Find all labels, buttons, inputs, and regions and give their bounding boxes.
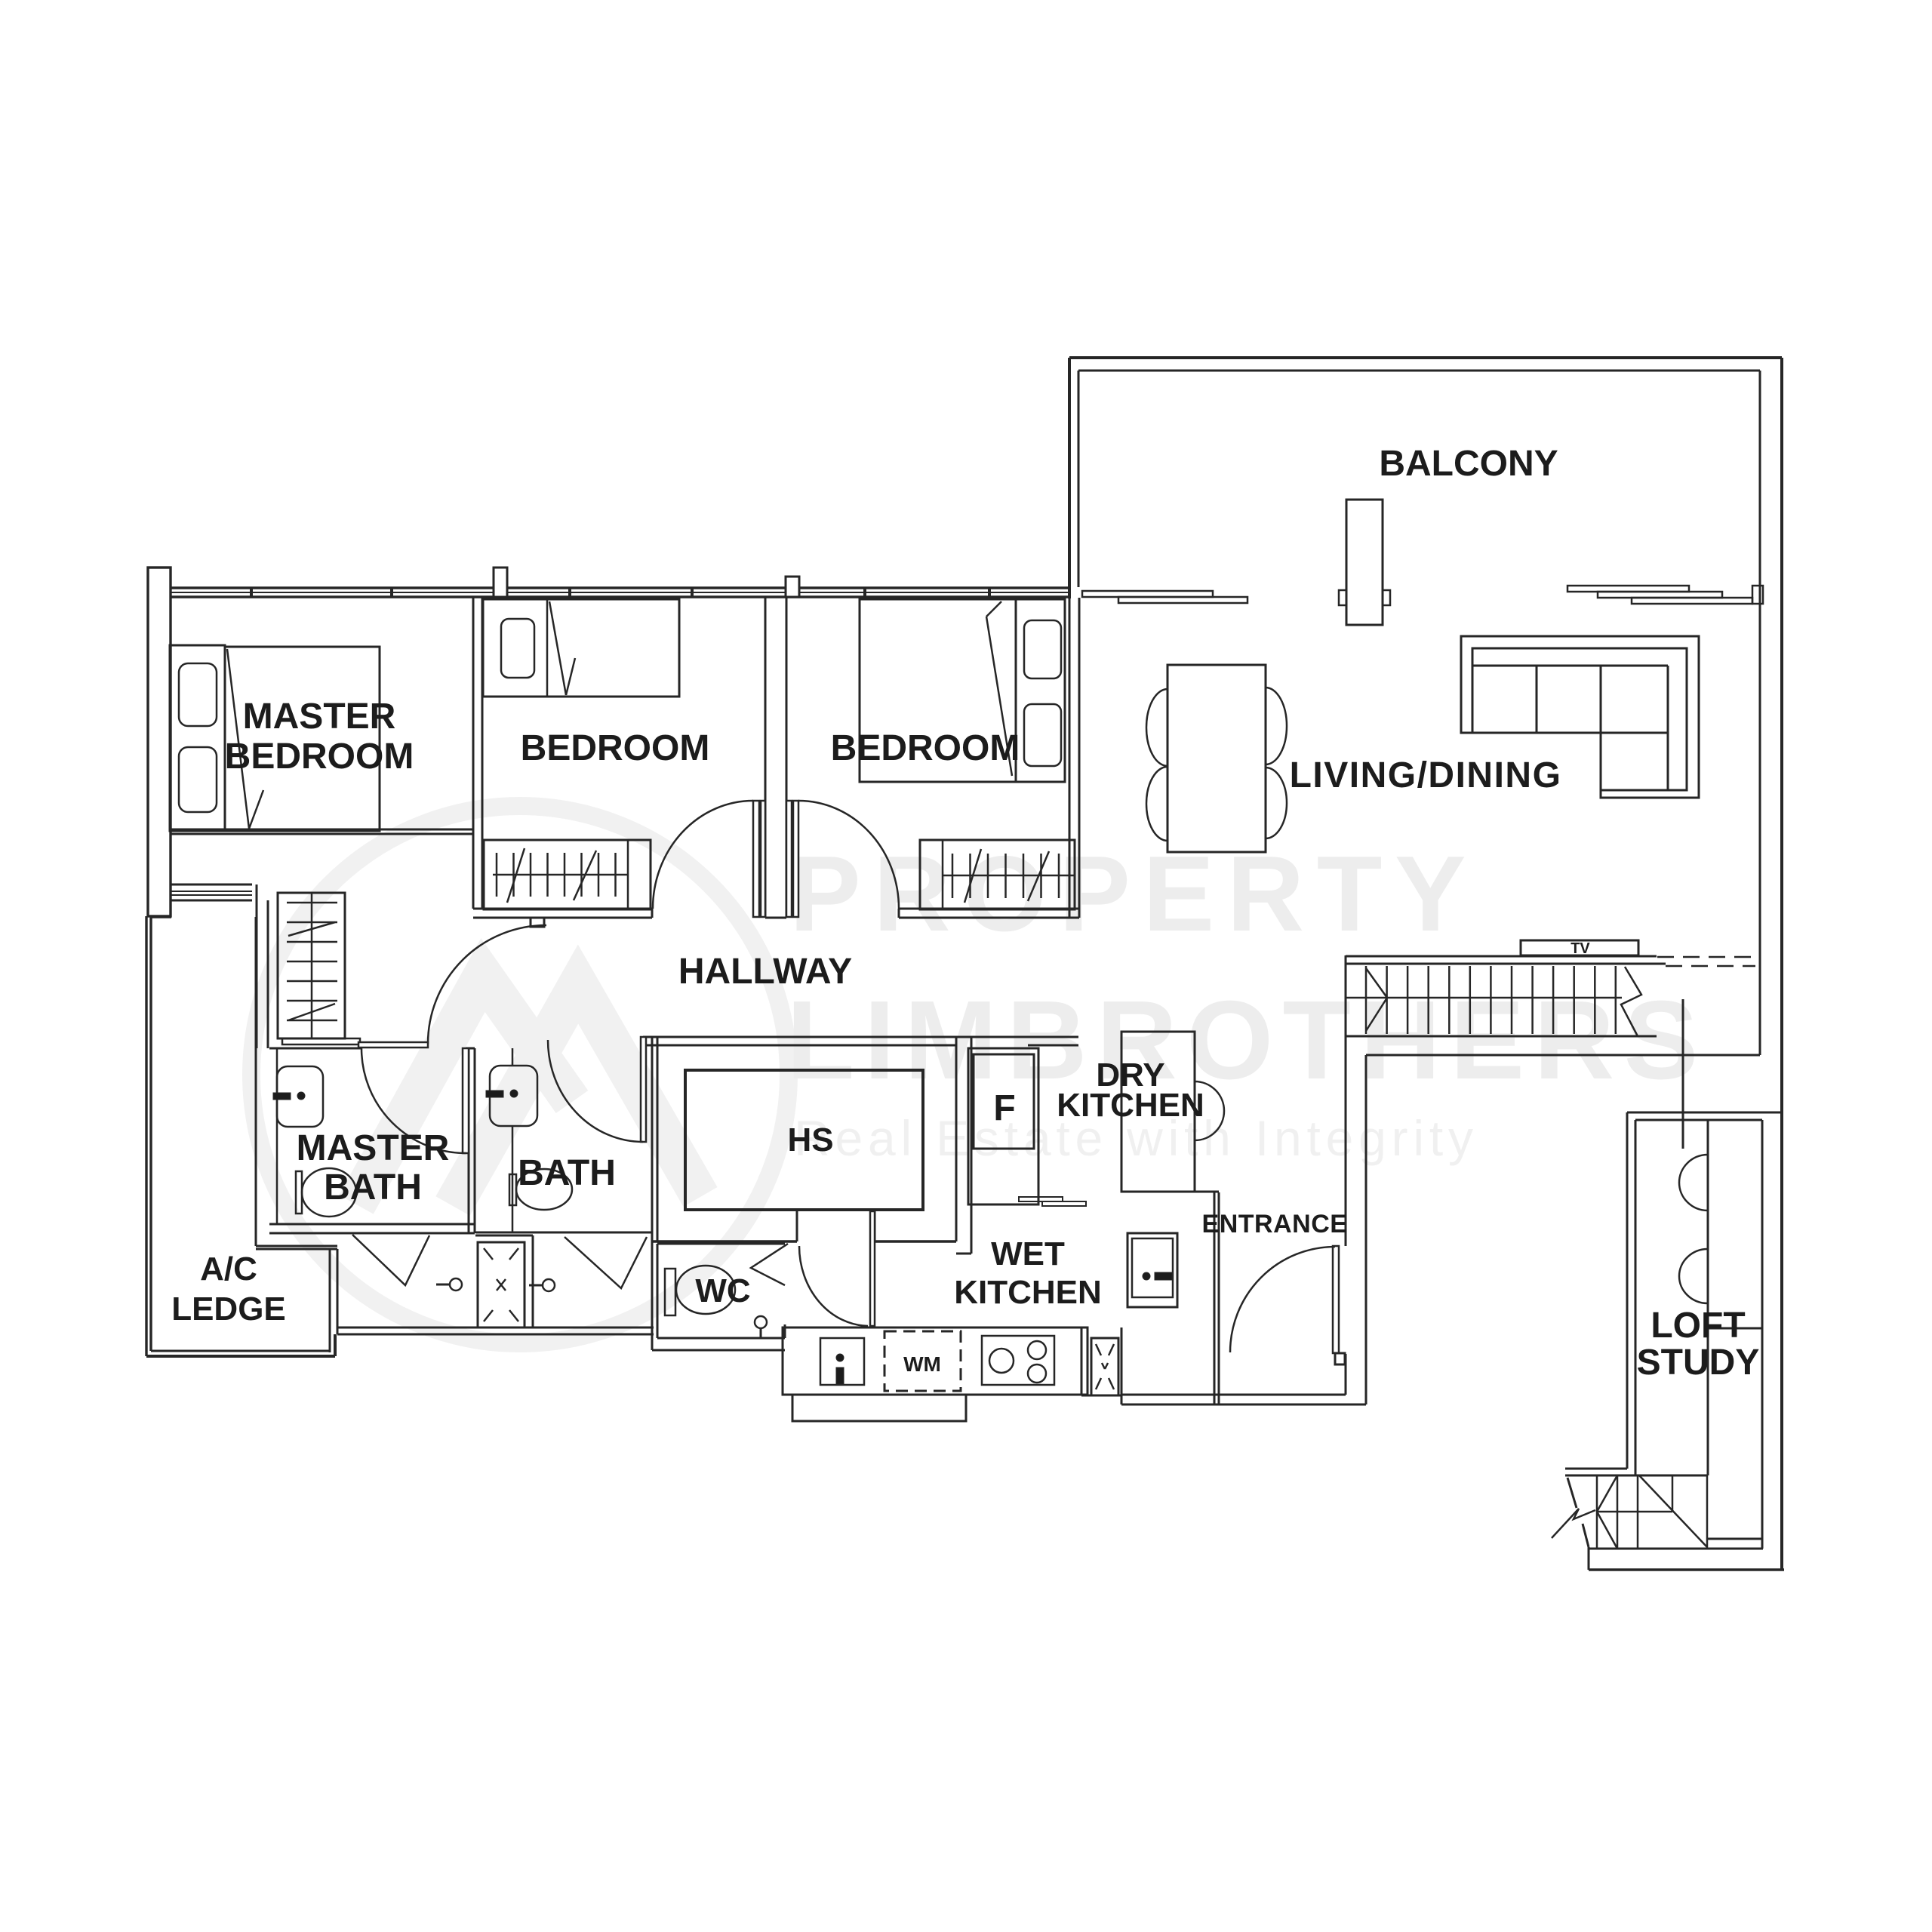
svg-text:HS: HS xyxy=(787,1121,833,1158)
svg-text:BATH: BATH xyxy=(518,1153,616,1193)
svg-text:TV: TV xyxy=(1571,940,1590,957)
svg-text:A/C: A/C xyxy=(200,1251,257,1287)
svg-text:HALLWAY: HALLWAY xyxy=(678,952,852,992)
svg-text:MASTER: MASTER xyxy=(243,697,396,737)
svg-text:LOFT: LOFT xyxy=(1651,1306,1745,1346)
svg-text:WET: WET xyxy=(991,1235,1065,1272)
svg-text:MASTER: MASTER xyxy=(297,1128,450,1168)
svg-text:WC: WC xyxy=(695,1272,750,1309)
svg-text:BALCONY: BALCONY xyxy=(1379,444,1558,484)
svg-text:WM: WM xyxy=(903,1352,941,1376)
svg-text:ENTRANCE: ENTRANCE xyxy=(1202,1210,1348,1238)
svg-text:LEDGE: LEDGE xyxy=(171,1291,286,1327)
svg-text:STUDY: STUDY xyxy=(1637,1343,1760,1383)
svg-text:BEDROOM: BEDROOM xyxy=(831,728,1020,768)
svg-text:PROPERTY: PROPERTY xyxy=(789,834,1478,954)
svg-text:BEDROOM: BEDROOM xyxy=(225,737,414,777)
svg-text:KITCHEN: KITCHEN xyxy=(954,1274,1102,1311)
svg-text:BATH: BATH xyxy=(324,1168,422,1207)
svg-text:F: F xyxy=(993,1088,1015,1128)
svg-text:BEDROOM: BEDROOM xyxy=(521,728,710,768)
svg-text:KITCHEN: KITCHEN xyxy=(1057,1087,1204,1124)
svg-text:LIVING/DINING: LIVING/DINING xyxy=(1290,755,1562,795)
